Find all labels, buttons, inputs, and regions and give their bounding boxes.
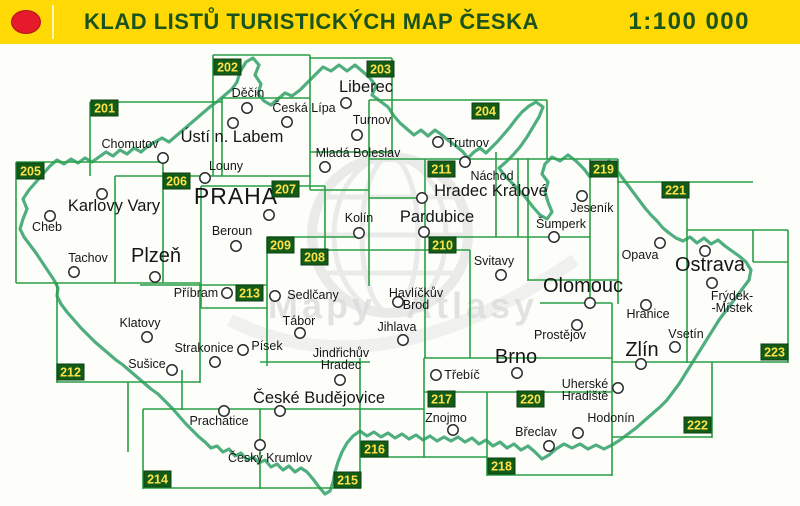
city-marker xyxy=(655,238,665,248)
city-marker xyxy=(255,440,265,450)
city-marker xyxy=(670,342,680,352)
city-marker xyxy=(228,118,238,128)
sheet-badge-212[interactable]: 212 xyxy=(57,364,84,380)
sheet-number: 210 xyxy=(432,239,453,253)
sheet-number: 208 xyxy=(304,251,325,265)
city-label: Plzeň xyxy=(131,245,181,267)
city-marker xyxy=(433,137,443,147)
city-marker xyxy=(577,191,587,201)
city-label: Sedlčany xyxy=(287,288,339,302)
sheet-badge-219[interactable]: 219 xyxy=(590,161,617,177)
city-marker xyxy=(282,117,292,127)
city-label: Sušice xyxy=(128,357,166,371)
city-marker xyxy=(167,365,177,375)
city-marker xyxy=(142,332,152,342)
city-label: České Budějovice xyxy=(253,388,385,407)
sheet-badge-220[interactable]: 220 xyxy=(517,391,544,407)
sheet-badge-210[interactable]: 210 xyxy=(429,237,456,253)
header-divider xyxy=(52,5,54,39)
city-label: Tábor xyxy=(283,314,316,328)
city-marker xyxy=(231,241,241,251)
city-label: Karlovy Vary xyxy=(68,197,161,215)
sheet-badge-207[interactable]: 207 xyxy=(272,181,299,197)
red-dot-icon xyxy=(11,10,41,34)
city-label: Česká Lípa xyxy=(272,100,335,115)
sheet-number: 206 xyxy=(166,175,187,189)
page-title: KLAD LISTŮ TURISTICKÝCH MAP ČESKA xyxy=(84,9,539,35)
city-marker xyxy=(295,328,305,338)
map-svg: MapyAtlasyDěčínČeská LípaLiberecTurnovMl… xyxy=(0,0,800,506)
city-marker xyxy=(419,227,429,237)
city-label: Trutnov xyxy=(447,136,490,150)
city-marker xyxy=(320,162,330,172)
city-label: Ústí n. Labem xyxy=(181,127,284,146)
city-marker xyxy=(417,193,427,203)
city-label: Beroun xyxy=(212,224,252,238)
city-marker xyxy=(150,272,160,282)
city-label: Strakonice xyxy=(174,341,233,355)
sheet-badge-203[interactable]: 203 xyxy=(367,61,394,77)
city-label: Prachatice xyxy=(189,414,248,428)
sheet-badge-209[interactable]: 209 xyxy=(267,237,294,253)
sheet-number: 211 xyxy=(431,163,451,177)
city-marker xyxy=(573,428,583,438)
city-marker xyxy=(242,103,252,113)
city-label: Jeseník xyxy=(570,201,614,215)
sheet-badge-215[interactable]: 215 xyxy=(334,472,361,488)
city-marker xyxy=(270,291,280,301)
city-label: Český Krumlov xyxy=(228,450,313,465)
sheet-number: 220 xyxy=(520,393,541,407)
sheet-badge-211[interactable]: 211 xyxy=(428,161,455,177)
city-label: Cheb xyxy=(32,220,62,234)
city-label: Frýdek--Místek xyxy=(711,289,753,315)
city-marker xyxy=(544,441,554,451)
city-marker xyxy=(707,278,717,288)
city-label: Hradec Králové xyxy=(434,182,548,200)
sheet-number: 222 xyxy=(687,419,708,433)
sheet-badge-202[interactable]: 202 xyxy=(214,59,241,75)
sheet-badge-216[interactable]: 216 xyxy=(361,441,388,457)
sheet-number: 214 xyxy=(147,473,168,487)
sheet-number: 223 xyxy=(764,346,785,360)
sheet-number: 205 xyxy=(20,165,41,179)
city-marker xyxy=(69,267,79,277)
sheet-number: 202 xyxy=(217,61,238,75)
city-marker xyxy=(512,368,522,378)
sheet-badge-217[interactable]: 217 xyxy=(428,391,455,407)
city-marker xyxy=(496,270,506,280)
sheet-badge-221[interactable]: 221 xyxy=(662,182,689,198)
sheet-badge-213[interactable]: 213 xyxy=(236,285,263,301)
city-marker xyxy=(341,98,351,108)
city-label: Liberec xyxy=(339,78,393,96)
header: KLAD LISTŮ TURISTICKÝCH MAP ČESKA 1:100 … xyxy=(0,0,800,44)
city-label: Pardubice xyxy=(400,208,474,226)
city-label: Svitavy xyxy=(474,254,515,268)
city-label: Zlín xyxy=(625,339,658,361)
city-marker xyxy=(335,375,345,385)
city-marker xyxy=(238,345,248,355)
city-label: Tachov xyxy=(68,251,108,265)
map-index-page: MapyAtlasyDěčínČeská LípaLiberecTurnovMl… xyxy=(0,0,800,506)
city-label: Břeclav xyxy=(515,425,557,439)
city-marker xyxy=(200,173,210,183)
city-marker xyxy=(460,157,470,167)
city-label: Vsetín xyxy=(668,327,703,341)
city-label: UherskéHradiště xyxy=(562,377,609,403)
city-marker xyxy=(354,228,364,238)
city-label: Brno xyxy=(495,346,537,368)
city-label: Prostějov xyxy=(534,328,587,342)
city-marker xyxy=(613,383,623,393)
city-label: Ostrava xyxy=(675,254,746,276)
city-marker xyxy=(275,406,285,416)
city-label: Třebíč xyxy=(444,368,479,382)
city-marker xyxy=(585,298,595,308)
sheet-number: 216 xyxy=(364,443,385,457)
sheet-badge-214[interactable]: 214 xyxy=(144,471,171,487)
city-marker xyxy=(264,210,274,220)
sheet-number: 218 xyxy=(491,460,512,474)
city-label: Mladá Boleslav xyxy=(316,146,402,160)
sheet-number: 204 xyxy=(475,105,496,119)
sheet-badge-201[interactable]: 201 xyxy=(91,100,118,116)
sheet-number: 217 xyxy=(431,393,452,407)
city-marker xyxy=(448,425,458,435)
city-marker xyxy=(549,232,559,242)
city-label: JindřichůvHradec xyxy=(313,346,370,372)
city-label: Děčín xyxy=(232,86,265,100)
city-label: Opava xyxy=(622,248,659,262)
sheet-number: 212 xyxy=(60,366,81,380)
brand-logo xyxy=(0,10,52,34)
sheet-badge-205[interactable]: 205 xyxy=(17,163,44,179)
city-label: Šumperk xyxy=(536,216,587,231)
city-label: Znojmo xyxy=(425,411,467,425)
city-marker xyxy=(222,288,232,298)
sheet-badge-223[interactable]: 223 xyxy=(761,344,788,360)
city-label: Klatovy xyxy=(120,316,162,330)
sheet-badge-208[interactable]: 208 xyxy=(301,249,328,265)
sheet-number: 213 xyxy=(239,287,260,301)
map-scale: 1:100 000 xyxy=(628,8,800,36)
sheet-number: 221 xyxy=(665,184,686,198)
city-label: Chomutov xyxy=(102,137,160,151)
sheet-badge-222[interactable]: 222 xyxy=(684,417,711,433)
city-label: Příbram xyxy=(174,286,218,300)
city-label: Jihlava xyxy=(378,320,417,334)
sheet-badge-218[interactable]: 218 xyxy=(488,458,515,474)
city-marker xyxy=(158,153,168,163)
sheet-number: 209 xyxy=(270,239,291,253)
city-marker xyxy=(352,130,362,140)
city-label: Turnov xyxy=(353,113,392,127)
city-label: Hodonín xyxy=(587,411,634,425)
city-label: Olomouc xyxy=(543,275,623,297)
sheet-badge-204[interactable]: 204 xyxy=(472,103,499,119)
city-label: Kolín xyxy=(345,211,374,225)
sheet-number: 201 xyxy=(94,102,115,116)
city-label: Louny xyxy=(209,159,244,173)
sheet-badge-206[interactable]: 206 xyxy=(163,173,190,189)
map-canvas: MapyAtlasyDěčínČeská LípaLiberecTurnovMl… xyxy=(0,0,800,506)
sheet-number: 203 xyxy=(370,63,391,77)
sheet-number: 215 xyxy=(337,474,358,488)
city-label: Náchod xyxy=(470,169,513,183)
city-label: PRAHA xyxy=(194,183,278,209)
city-marker xyxy=(431,370,441,380)
city-marker xyxy=(210,357,220,367)
sheet-number: 219 xyxy=(593,163,614,177)
sheet-number: 207 xyxy=(275,183,296,197)
city-label: Písek xyxy=(251,339,283,353)
city-marker xyxy=(398,335,408,345)
city-label: Hranice xyxy=(626,307,669,321)
